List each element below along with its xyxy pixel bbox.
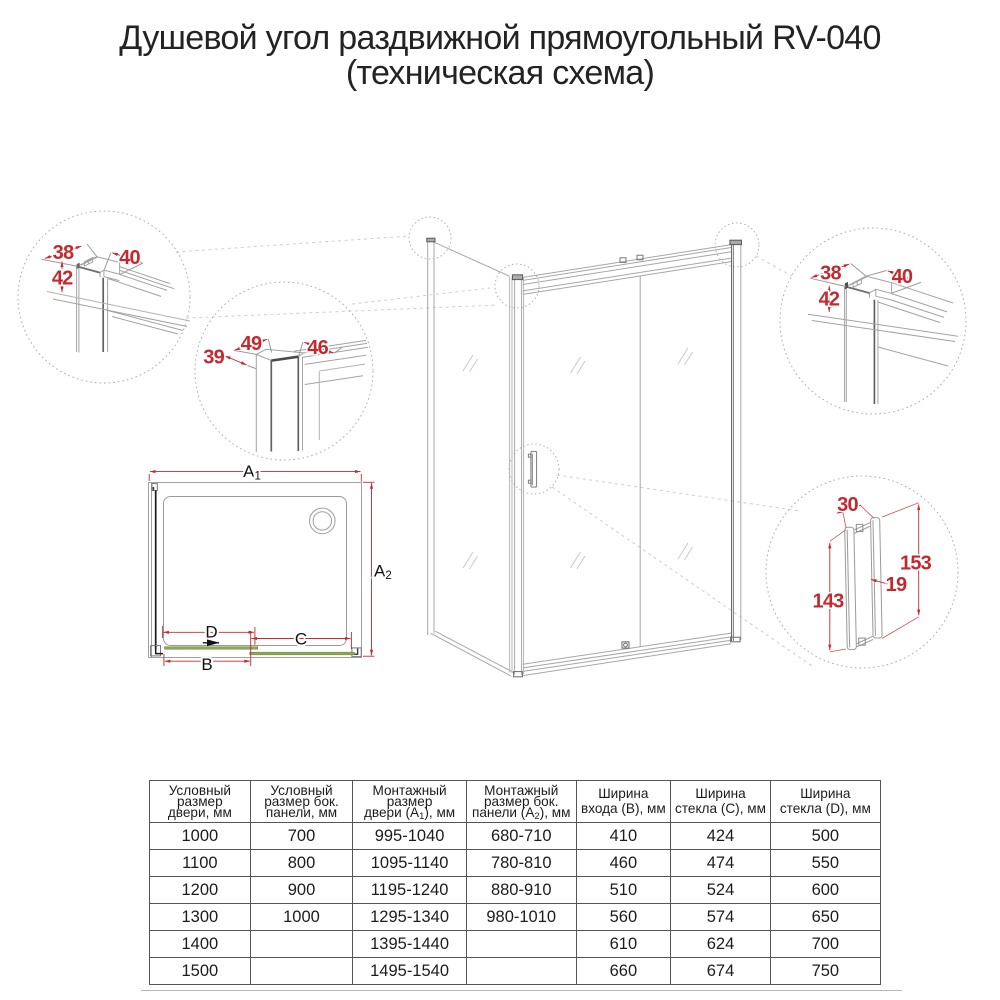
svg-text:153: 153	[900, 553, 932, 575]
svg-text:38: 38	[53, 242, 74, 264]
svg-text:40: 40	[892, 266, 913, 288]
svg-text:C: C	[295, 630, 307, 649]
svg-text:A2: A2	[374, 562, 392, 583]
svg-text:46: 46	[307, 337, 328, 359]
svg-text:38: 38	[820, 263, 841, 285]
svg-text:42: 42	[819, 289, 840, 311]
svg-text:A1: A1	[243, 462, 261, 483]
svg-text:19: 19	[886, 574, 907, 596]
svg-text:30: 30	[837, 494, 858, 516]
svg-text:39: 39	[203, 346, 224, 368]
svg-text:B: B	[201, 655, 212, 674]
svg-text:40: 40	[119, 247, 140, 269]
svg-text:49: 49	[241, 333, 262, 355]
svg-text:143: 143	[813, 591, 845, 613]
svg-text:D: D	[205, 623, 217, 642]
svg-text:42: 42	[52, 267, 73, 289]
